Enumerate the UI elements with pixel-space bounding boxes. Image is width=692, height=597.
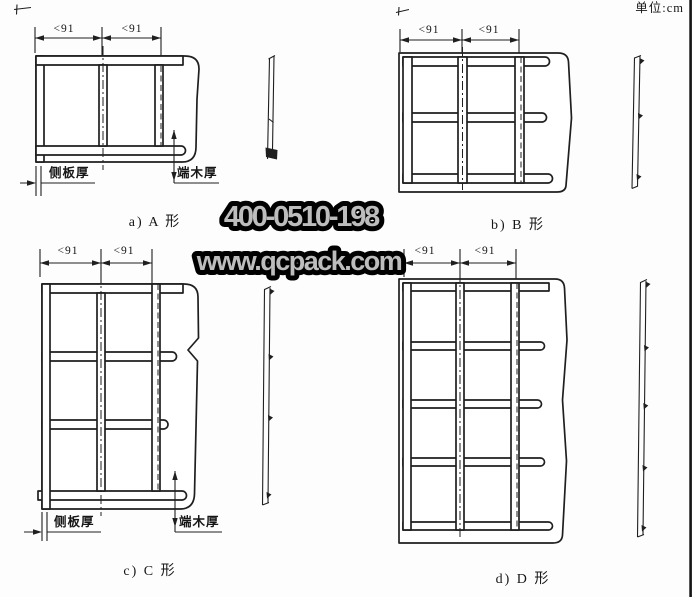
- bottom-rail-a: [36, 146, 186, 155]
- dim-label-c-2: <91: [114, 245, 135, 258]
- left-end-plank-c: [42, 284, 50, 509]
- line-art: 400-0510-198 www.qcpack.com: [0, 0, 692, 597]
- caption-type-b: b) B 形: [491, 218, 545, 233]
- right-plank-d: [511, 283, 519, 530]
- side-board-thickness-label-a: 侧板厚: [49, 167, 90, 181]
- dim-label-d-2: <91: [475, 245, 496, 258]
- right-plank-a: [155, 65, 163, 146]
- dim-label-b-2: <91: [479, 24, 500, 37]
- dim-label-a-2: <91: [122, 23, 143, 36]
- dim-label-c-1: <91: [58, 245, 79, 258]
- watermarks: 400-0510-198 www.qcpack.com: [196, 201, 402, 276]
- side-board-thickness-label-c: 侧板厚: [54, 516, 95, 530]
- left-end-plank-b: [403, 57, 412, 183]
- side-board-d: [399, 279, 567, 543]
- diagram-b-side-view: [632, 56, 645, 189]
- diagram-d-side-view: [638, 280, 651, 538]
- top-rail-d: [403, 283, 549, 291]
- bottom-rail-d: [403, 522, 553, 530]
- watermark-website: www.qcpack.com: [196, 246, 402, 276]
- top-rail-b: [403, 57, 550, 66]
- dim-label-b-1: <91: [419, 24, 440, 37]
- diagram-d: [399, 249, 651, 543]
- middle-rail-b: [403, 113, 547, 122]
- dim-label-a-1: <91: [54, 23, 75, 36]
- diagram-c-side-view: [263, 287, 275, 506]
- left-end-plank-d: [403, 283, 411, 530]
- bottom-rail-b: [403, 174, 553, 183]
- top-rail-a: [36, 56, 183, 65]
- watermark-phone: 400-0510-198: [224, 201, 380, 233]
- diagram-b-front-view: [399, 47, 572, 192]
- caption-type-a: a) A 形: [129, 215, 181, 230]
- top-rail-c: [42, 284, 183, 293]
- middle-rail-3-d: [403, 458, 545, 466]
- scanned-diagram-page: 400-0510-198 www.qcpack.com 单位:cm <91 <9…: [0, 0, 692, 597]
- end-wood-thickness-label-c: 端木厚: [179, 516, 220, 530]
- middle-rail-1-d: [403, 342, 545, 350]
- caption-type-d: d) D 形: [496, 572, 551, 587]
- bottom-rail-c: [38, 491, 187, 500]
- middle-rail-2-d: [403, 400, 542, 408]
- right-plank-b: [515, 57, 524, 183]
- right-plank-c: [152, 284, 160, 491]
- dim-label-d-1: <91: [415, 245, 436, 258]
- diagram-d-front-view: [399, 273, 567, 543]
- unit-label: 单位:cm: [635, 2, 684, 16]
- end-wood-thickness-label-a: 端木厚: [177, 167, 218, 181]
- pencil-tick-marks: [14, 5, 409, 16]
- diagram-c: [24, 249, 275, 541]
- diagram-b: [399, 29, 645, 192]
- diagram-a-side-view: [266, 56, 278, 160]
- caption-type-c: c) C 形: [123, 564, 176, 579]
